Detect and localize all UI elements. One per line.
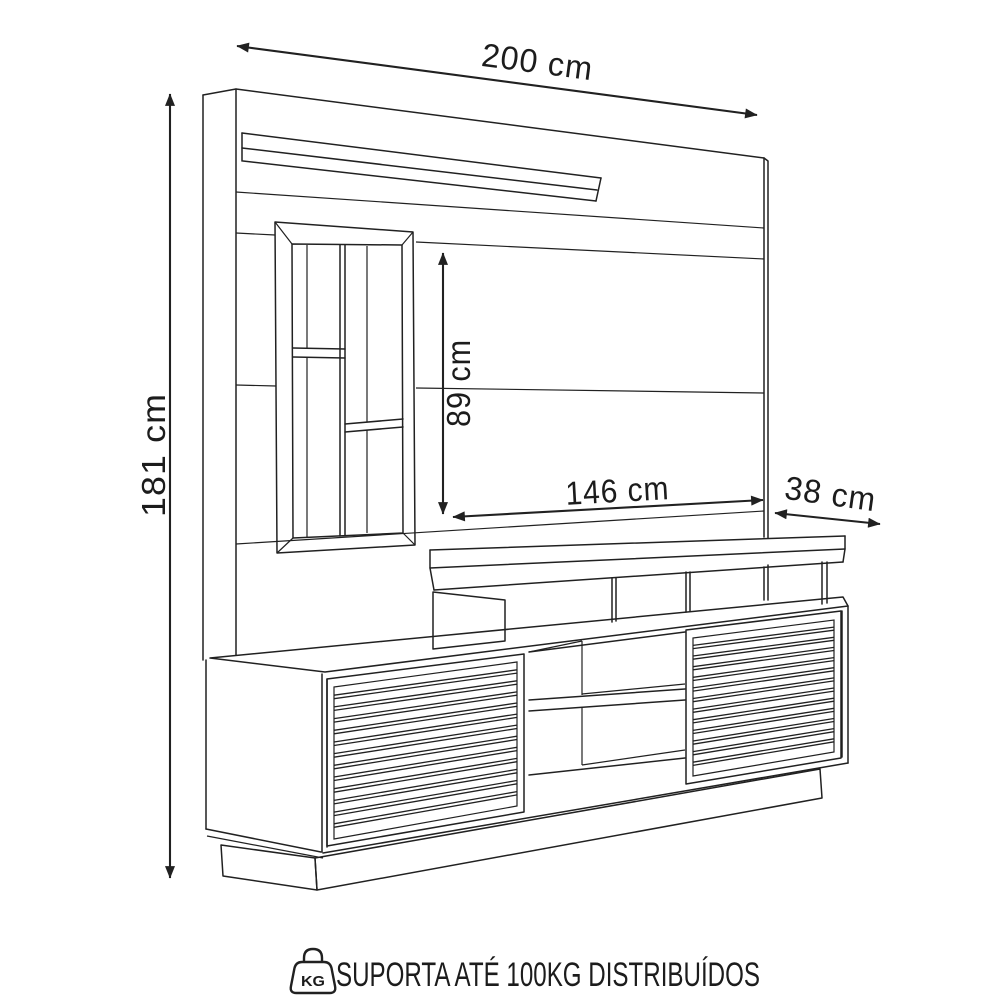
panel-groove-1 — [236, 192, 764, 228]
shelf-back-top-edge — [242, 133, 601, 178]
panel-right-edge-below-console — [764, 565, 768, 600]
panel-top-edge — [203, 89, 764, 158]
shelf-front-top-edge — [242, 148, 597, 190]
door-slat-line — [693, 732, 834, 755]
door-slat-line — [693, 630, 834, 648]
door-slat-line — [334, 670, 517, 695]
niche-center-divider — [340, 245, 345, 536]
niche-display-box — [275, 222, 415, 553]
panel-groove-3 — [236, 385, 764, 393]
left-door-slats — [334, 670, 517, 828]
console-divider-1 — [612, 578, 616, 622]
door-slat-line — [334, 681, 517, 707]
console-top-front-edge — [430, 549, 845, 568]
compartment-floor-back-edge — [582, 750, 685, 765]
capacity-note-text: SUPORTA ATÉ 100KG DISTRIBUÍDOS — [336, 956, 760, 994]
door-slat-line — [334, 729, 517, 758]
door-slat-line — [334, 673, 517, 699]
cabinet-side-bottom-lip — [207, 836, 323, 858]
plinth-front-face — [315, 769, 822, 890]
door-slat-line — [334, 747, 517, 777]
console-divider-2 — [686, 572, 690, 612]
door-slat-line — [693, 722, 834, 745]
lower-cabinet — [206, 597, 848, 890]
console-top-back-edge — [430, 536, 845, 550]
left-louver-door — [327, 654, 524, 846]
niche-left-shelf — [293, 348, 345, 358]
door-slat-line — [334, 740, 517, 769]
console-width-dimension-label: 146 cm — [564, 469, 670, 512]
shelf-front-bottom-edge — [243, 161, 596, 201]
right-door-outer — [686, 611, 841, 784]
door-slat-line — [334, 717, 517, 745]
cabinet-right-edge — [842, 606, 848, 763]
door-slat-line — [334, 751, 517, 781]
door-slat-line — [693, 742, 834, 766]
floating-top-shelf — [242, 133, 601, 201]
console-bottom-front-edge — [434, 562, 843, 590]
cabinet-side-bottom-edge — [206, 829, 321, 852]
compartment-floor — [529, 758, 685, 775]
door-slat-line — [693, 729, 834, 752]
door-slat-line — [693, 739, 834, 762]
depth-dimension-label: 38 cm — [782, 469, 878, 518]
wall-panel — [203, 89, 768, 660]
right-door-slats — [693, 627, 834, 765]
height-dimension-label: 181 cm — [135, 393, 172, 517]
footer-note: KG SUPORTA ATÉ 100KG DISTRIBUÍDOS — [291, 949, 760, 994]
console-left-end — [430, 550, 434, 590]
panel-groove-4 — [236, 511, 764, 544]
niche-right-shelf — [345, 419, 403, 432]
right-louver-door — [686, 611, 841, 784]
compartment-shelf — [529, 689, 685, 711]
cabinet-top-surface — [210, 597, 848, 672]
plinth-base — [221, 769, 822, 890]
panel-groove-2 — [236, 233, 764, 259]
kg-icon-label: KG — [301, 973, 325, 990]
niche-inner-frame — [292, 244, 403, 538]
door-slat-line — [334, 692, 517, 719]
furniture-line-drawing: 200 cm 181 cm 89 cm 146 cm 38 cm KG SUPO… — [0, 0, 1000, 1000]
plinth-left-face — [221, 845, 317, 890]
console-left-support — [433, 592, 505, 649]
tv-space-dimension-label: 89 cm — [440, 339, 477, 427]
middle-open-compartment — [529, 632, 685, 775]
door-slat-line — [334, 736, 517, 765]
compartment-ceiling — [529, 632, 685, 652]
kg-weight-icon: KG — [291, 949, 336, 993]
product-dimension-diagram: 200 cm 181 cm 89 cm 146 cm 38 cm KG SUPO… — [0, 0, 1000, 1000]
console-right-leg — [822, 562, 827, 604]
